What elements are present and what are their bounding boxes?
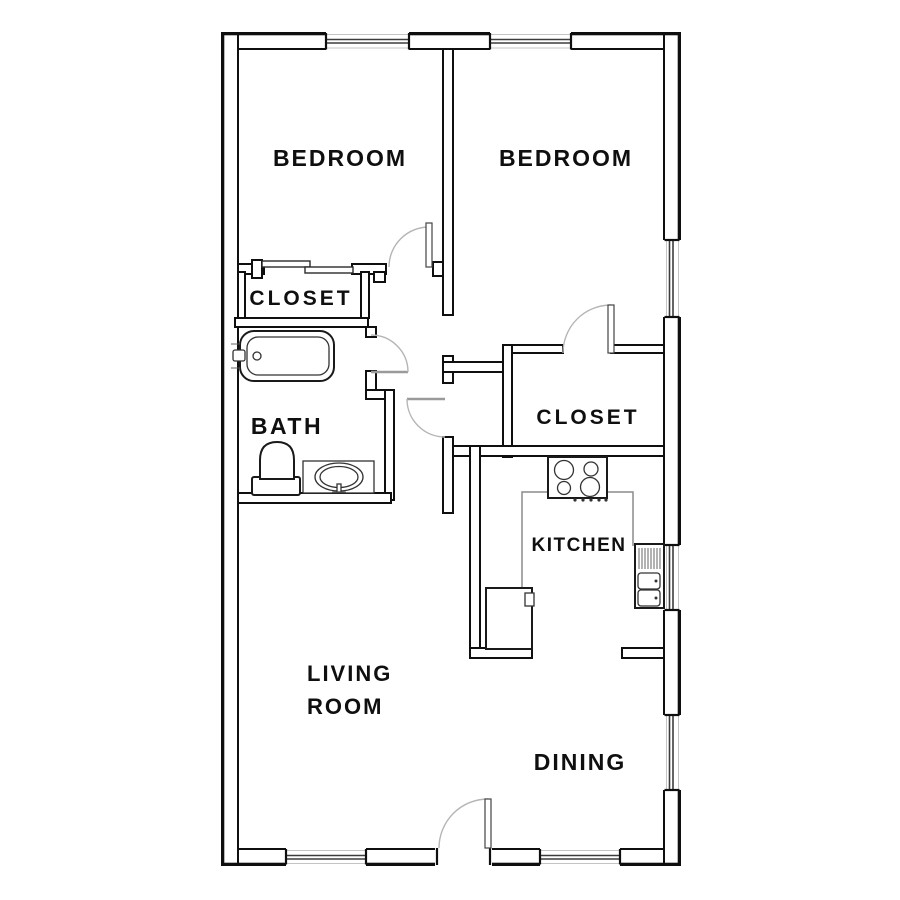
interior-wall-jamb	[374, 272, 385, 282]
toilet-icon	[252, 442, 300, 495]
exterior-wall-left	[222, 33, 238, 865]
room-label-bedroom-1: BEDROOM	[273, 145, 407, 171]
closet2-wall-north	[512, 345, 563, 353]
floor-plan: BEDROOM BEDROOM CLOSET BATH CLOSET KITCH…	[0, 0, 900, 900]
living-room-door-swing	[407, 399, 445, 437]
hallway-wall-south	[443, 362, 512, 372]
closet1-sliding-doors	[262, 261, 353, 273]
refrigerator-icon	[486, 588, 534, 649]
window-symbol	[662, 545, 683, 610]
entry-opening	[435, 846, 492, 868]
room-label-kitchen: KITCHEN	[532, 535, 627, 556]
room-label-living-line1: LIVING	[307, 661, 392, 686]
closet1-wall-east	[361, 272, 369, 318]
closet2-wall-west	[503, 345, 512, 457]
closet1-wall-south	[235, 318, 368, 327]
bath-door-swing	[371, 335, 408, 372]
interior-wall-jamb	[433, 262, 443, 276]
kitchen-wall-north	[453, 446, 664, 456]
window-symbol	[286, 847, 366, 868]
hallway-wall	[443, 437, 453, 513]
room-label-dining: DINING	[534, 749, 627, 775]
room-label-closet-2: CLOSET	[536, 406, 639, 429]
window-symbol	[662, 240, 683, 317]
closet1-wall-west	[238, 272, 245, 318]
window-symbol	[326, 31, 409, 52]
window-symbol	[490, 31, 571, 52]
kitchen-wall-west	[470, 446, 480, 658]
bathroom-sink-icon	[303, 461, 374, 493]
interior-wall-jamb	[252, 260, 262, 278]
kitchen-wall-south	[622, 648, 664, 658]
room-label-bath: BATH	[251, 413, 323, 439]
floor-plan-page: BEDROOM BEDROOM CLOSET BATH CLOSET KITCH…	[0, 0, 900, 900]
closet2-wall-north	[611, 345, 664, 353]
kitchen-sink-icon	[635, 544, 664, 608]
interior-wall-bedroom-divider	[443, 49, 453, 315]
window-symbol	[662, 715, 683, 790]
bath-wall	[385, 390, 394, 500]
window-symbol	[540, 847, 620, 868]
room-label-living-line2: ROOM	[307, 694, 383, 719]
bedroom1-door-swing	[389, 223, 432, 267]
room-label-closet-1: CLOSET	[249, 287, 352, 310]
room-label-bedroom-2: BEDROOM	[499, 145, 633, 171]
entry-door-swing	[439, 799, 491, 848]
bathtub-icon	[231, 331, 334, 381]
exterior-wall-top	[222, 33, 680, 49]
stove-icon	[548, 457, 608, 502]
closet2-door-swing	[563, 305, 614, 353]
